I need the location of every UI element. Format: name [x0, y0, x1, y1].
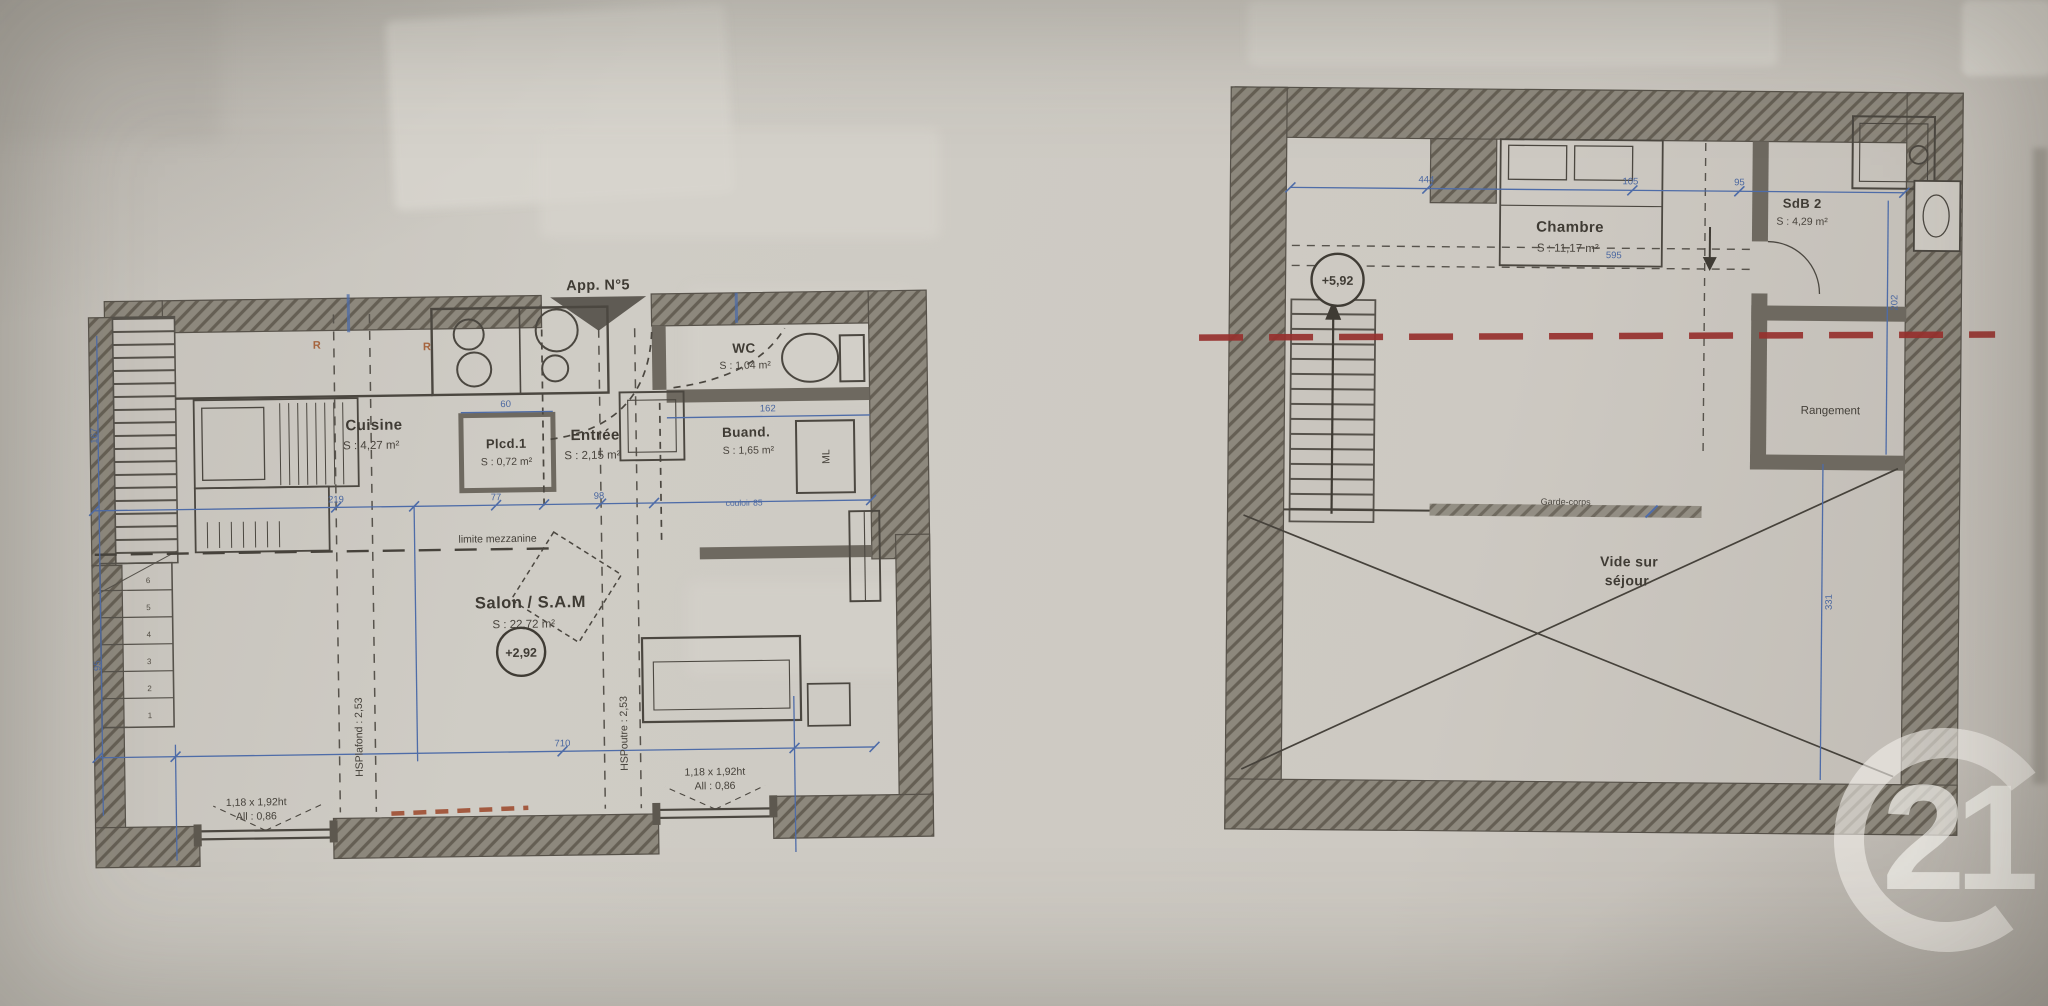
step-number: 2	[147, 684, 152, 693]
beam-lines	[333, 310, 641, 812]
dim-202: 202	[1889, 295, 1900, 311]
floorplan-photo: 6 5 4 3 2 1	[0, 0, 2048, 1006]
dim-710: 710	[554, 738, 570, 749]
placard-walls	[461, 414, 554, 490]
hsp-right-label: HSPoutre : 2,53	[618, 696, 631, 771]
red-dash-mark	[391, 808, 528, 814]
room-wc-area: S : 1,04 m²	[719, 359, 771, 372]
dim-77: 77	[491, 492, 502, 503]
sdb-door-swing	[1767, 242, 1819, 294]
room-vide-line1: Vide sur	[1600, 553, 1658, 570]
dim-331: 331	[1824, 594, 1835, 610]
step-number: 6	[146, 576, 151, 585]
exterior-walls	[88, 290, 934, 868]
r-mark-2: R	[423, 341, 431, 353]
wc-fixtures	[782, 333, 865, 382]
staircase	[1289, 299, 1375, 522]
plan-linework: 6 5 4 3 2 1	[0, 0, 2048, 1006]
r-mark-1: R	[313, 340, 321, 352]
dim-note: couloir 85	[726, 497, 763, 508]
room-buanderie-area: S : 1,65 m²	[723, 444, 775, 457]
room-labels: Chambre S : 11,17 m² SdB 2 S : 4,29 m² R…	[1533, 194, 1863, 591]
level-value: +2,92	[505, 646, 537, 660]
mezzanine-limit-label: limite mezzanine	[458, 533, 537, 546]
washing-machine-label: ML	[820, 449, 832, 464]
window-right-allege: All : 0,86	[695, 780, 736, 793]
window-left-allege: All : 0,86	[236, 810, 277, 823]
sink	[1914, 181, 1961, 251]
level-value: +5,92	[1322, 274, 1354, 288]
floor-plan-mezzanine: +5,92	[1195, 87, 1997, 836]
dim-95: 95	[1734, 177, 1745, 188]
dimension-lines	[86, 287, 881, 862]
dim-219: 219	[328, 494, 344, 505]
step-number: 5	[146, 603, 151, 612]
step-number: 1	[148, 711, 153, 720]
room-vide-line2: séjour	[1605, 572, 1650, 588]
dim-95: 95	[92, 660, 103, 671]
dim-167: 167	[89, 428, 100, 444]
window-left-size: 1,18 x 1,92ht	[226, 796, 287, 809]
room-sdb-area: S : 4,29 m²	[1776, 216, 1828, 228]
washing-machine: ML	[796, 420, 855, 493]
room-chambre: Chambre	[1536, 219, 1604, 237]
partitions	[1750, 141, 1908, 470]
room-placard: Plcd.1	[486, 436, 527, 452]
duct-column	[1430, 139, 1497, 204]
entrance-arrow	[550, 296, 646, 331]
room-entree: Entrée	[570, 426, 619, 444]
hsp-left-label: HSPlafond : 2,53	[353, 697, 366, 777]
garde-corps-label: Garde-corps	[1541, 497, 1592, 507]
room-buanderie: Buand.	[722, 424, 770, 440]
dimension-labels: 444 105 95 595 202 331	[1415, 174, 1902, 610]
room-sdb: SdB 2	[1783, 196, 1822, 211]
dim-595: 595	[1606, 250, 1622, 261]
room-wc: WC	[732, 341, 756, 356]
dim-162: 162	[760, 403, 776, 414]
room-cuisine-area: S : 4,27 m²	[343, 440, 400, 453]
dim-60: 60	[500, 399, 511, 410]
dim-105: 105	[1622, 176, 1638, 187]
step-number: 4	[147, 630, 152, 639]
room-cuisine: Cuisine	[345, 416, 402, 434]
room-entree-area: S : 2,15 m²	[564, 449, 621, 462]
dim-444: 444	[1418, 174, 1434, 185]
furniture	[508, 389, 882, 730]
room-rangement: Rangement	[1801, 405, 1861, 418]
room-salon: Salon / S.A.M	[475, 593, 586, 613]
room-chambre-area: S : 11,17 m²	[1537, 243, 1599, 256]
dim-98: 98	[594, 491, 605, 502]
room-salon-area: S : 22,72 m²	[492, 618, 555, 631]
apartment-title: App. N°5	[566, 277, 630, 294]
step-number: 3	[147, 657, 152, 666]
floor-plan-level-1: 6 5 4 3 2 1	[86, 273, 934, 868]
room-placard-area: S : 0,72 m²	[481, 456, 533, 469]
window-right-size: 1,18 x 1,92ht	[684, 766, 745, 779]
